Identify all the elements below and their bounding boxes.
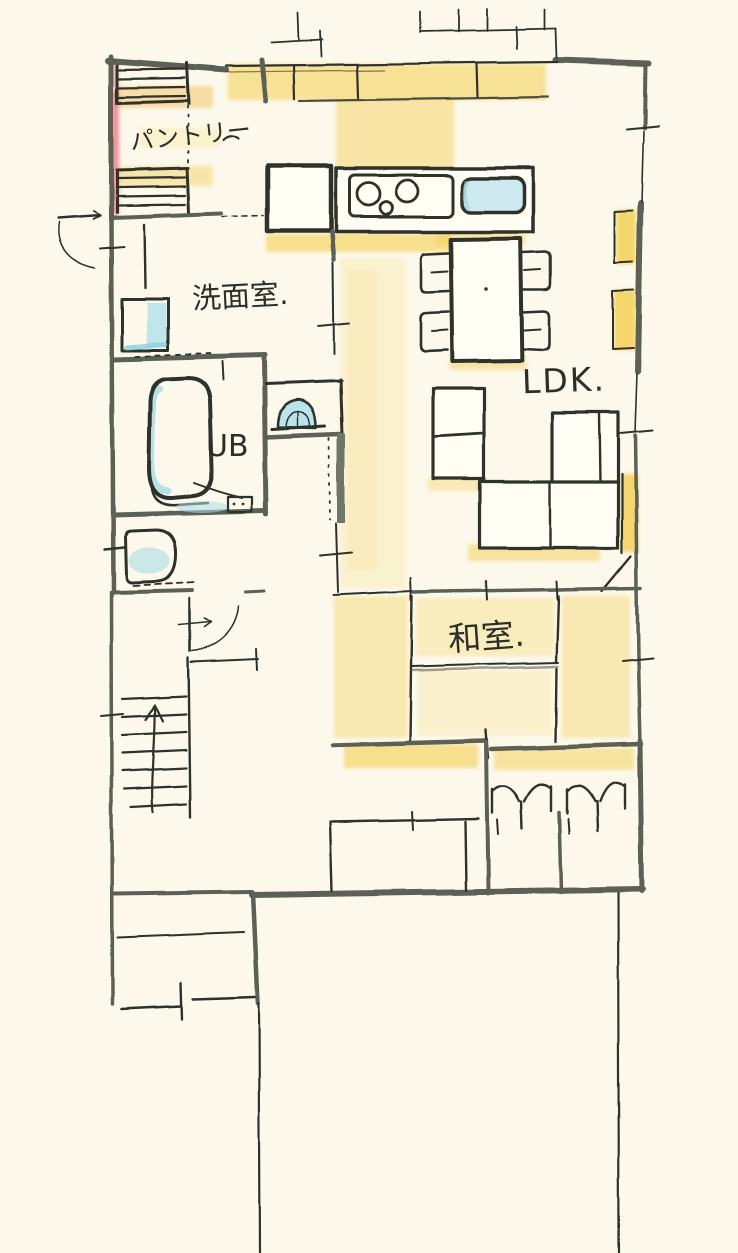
entrance-door	[121, 1006, 181, 1009]
floor-plan-sketch: パントリー 洗面室. UB LDK. 和室.	[0, 0, 738, 1253]
sliding-door-leaf	[337, 433, 345, 523]
label-japanese-room: 和室.	[447, 615, 526, 659]
toilet	[104, 530, 197, 585]
genkan-step	[117, 932, 244, 937]
up-arrow	[152, 707, 155, 812]
open-door-leaf	[602, 556, 631, 591]
label-pantry: パントリー	[129, 116, 252, 157]
label-washroom: 洗面室.	[191, 277, 289, 316]
staircase	[101, 649, 258, 817]
exterior-swing-door	[58, 211, 100, 268]
site-lines	[259, 893, 619, 1253]
sofa	[480, 412, 618, 548]
refrigerator	[267, 166, 331, 231]
toilet-walls	[112, 590, 264, 592]
window-symbols-top	[226, 9, 558, 72]
label-unit-bath: UB	[206, 429, 249, 464]
vanity-basin	[265, 380, 352, 592]
tv-board	[433, 389, 484, 479]
hall-swing-door	[179, 598, 239, 651]
dining-table	[451, 239, 522, 362]
kitchen-sink	[462, 178, 524, 212]
floor-plan-svg: パントリー 洗面室. UB LDK. 和室.	[0, 0, 738, 1253]
label-ldk: LDK.	[521, 359, 606, 401]
entrance	[117, 932, 255, 1019]
washbasin-counter	[122, 299, 168, 350]
